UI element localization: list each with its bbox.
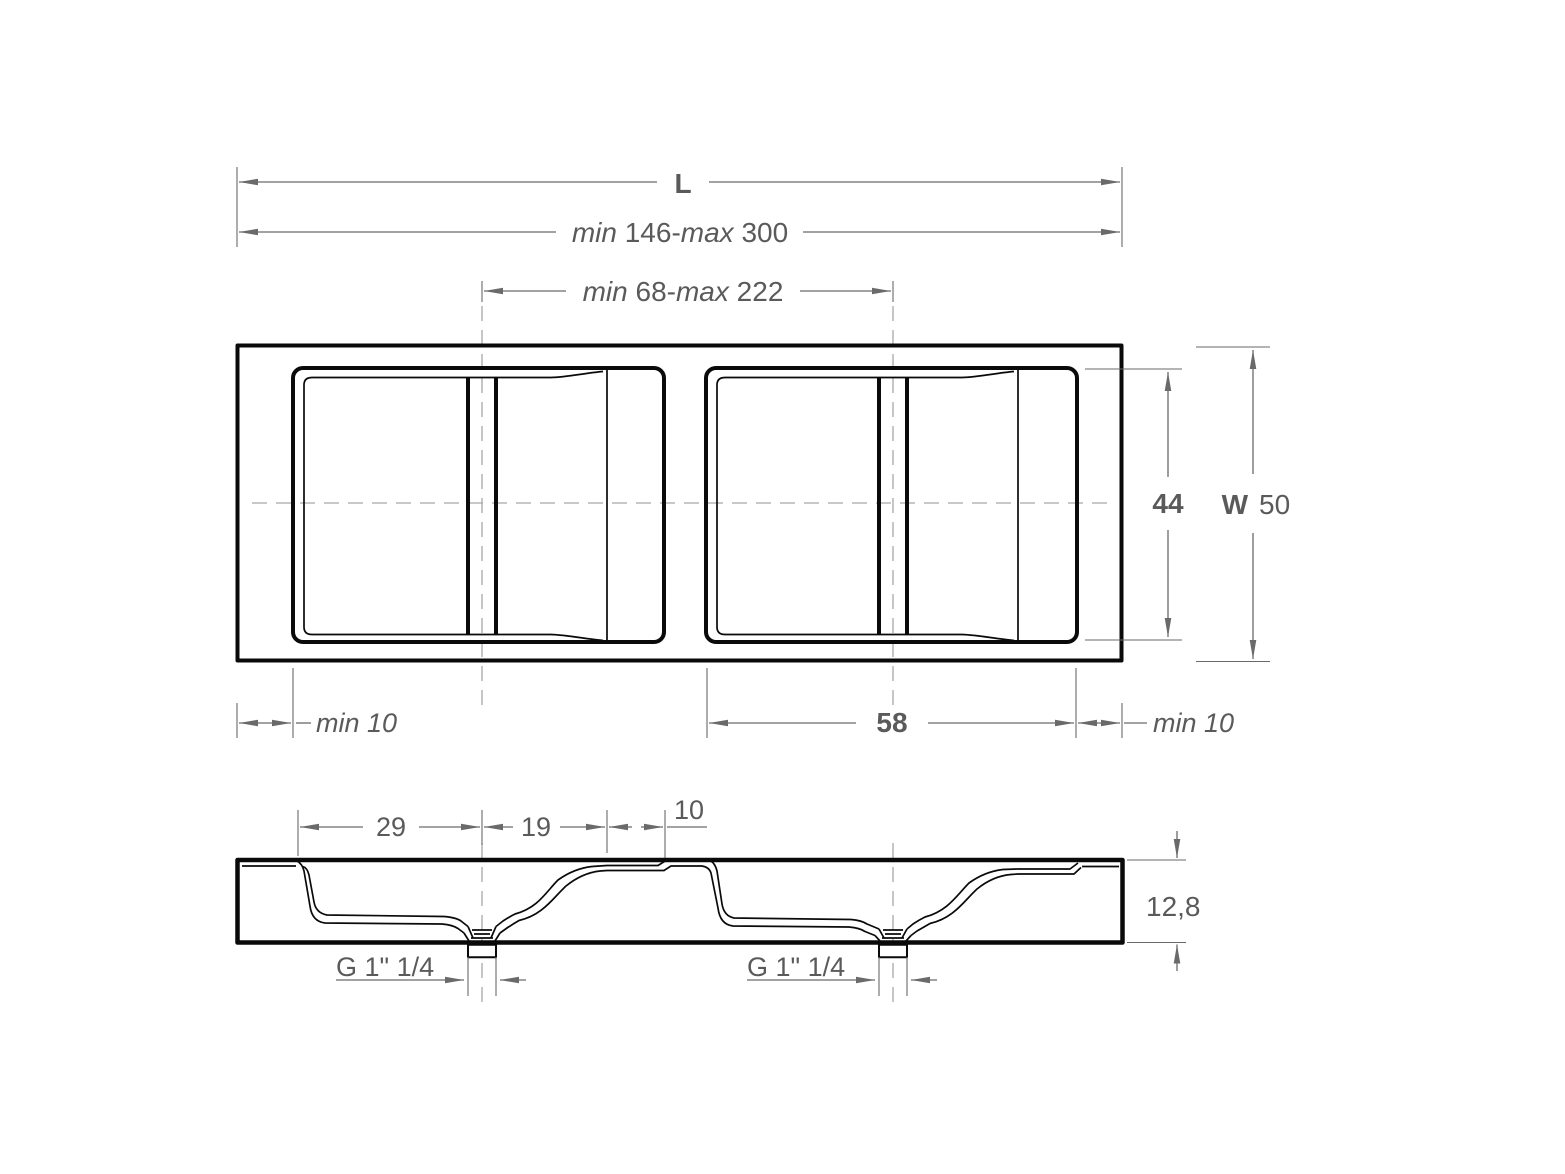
dim-right-margin: min 10 xyxy=(1078,703,1234,738)
basin-width-label: 44 xyxy=(1152,488,1184,519)
dim-basin-width-44: 44 xyxy=(1085,369,1184,640)
overall-length-label: L xyxy=(674,168,691,199)
drain-spacing-label: min 68-max 222 xyxy=(583,276,784,307)
right-margin-label: min 10 xyxy=(1153,708,1234,738)
dim-29-label: 29 xyxy=(376,812,406,842)
dim-10-label: 10 xyxy=(674,795,704,825)
right-drain-stub xyxy=(879,945,907,958)
callout-left-drain: G 1" 1/4 xyxy=(336,952,526,996)
overall-width-value: 50 xyxy=(1259,489,1290,520)
plan-view xyxy=(238,346,1122,661)
right-basin-profile-inner-a xyxy=(711,861,879,929)
right-basin-profile-outer-b xyxy=(911,868,1081,936)
length-range-label: min 146-max 300 xyxy=(572,217,788,248)
left-drain-threads xyxy=(471,930,493,938)
dim-length-range: min 146-max 300 xyxy=(239,217,1120,248)
right-basin-inner-edge xyxy=(717,372,1014,641)
countertop-outline xyxy=(238,346,1122,661)
section-view xyxy=(238,860,1123,957)
dim-basin-length-58: 58 xyxy=(707,668,1076,738)
left-basin-inner-edge xyxy=(304,372,603,641)
dim-thickness: 12,8 xyxy=(1127,831,1201,971)
right-drain-threads xyxy=(882,930,904,938)
right-drain-thread-label: G 1" 1/4 xyxy=(747,952,845,982)
dim-left-margin: min 10 xyxy=(237,668,397,738)
dim-19-label: 19 xyxy=(521,812,551,842)
technical-drawing: L min 146-max 300 min 68-max 222 xyxy=(0,0,1565,1174)
left-margin-label: min 10 xyxy=(316,708,397,738)
dim-drain-spacing-range: min 68-max 222 xyxy=(482,276,893,307)
overall-width-letter: W xyxy=(1222,489,1249,520)
left-basin-plan xyxy=(293,368,664,642)
left-drain-stub xyxy=(468,945,496,958)
centerlines xyxy=(252,306,1108,1005)
drawing-svg: L min 146-max 300 min 68-max 222 xyxy=(0,0,1565,1174)
dim-section-top: 29 19 10 xyxy=(298,795,707,860)
thickness-label: 12,8 xyxy=(1146,891,1201,922)
right-basin-profile-outer-a xyxy=(702,866,875,936)
left-basin-rim xyxy=(293,368,664,642)
left-basin-profile-outer-a xyxy=(297,861,464,933)
left-basin-profile-inner-a xyxy=(303,867,468,927)
right-basin-profile-inner-b xyxy=(907,863,1078,929)
basin-length-label: 58 xyxy=(876,707,907,738)
right-basin-plan xyxy=(706,368,1077,642)
dim-overall-width-50: W 50 xyxy=(1196,347,1290,662)
left-basin-profile-outer-b xyxy=(500,866,702,933)
callout-right-drain: G 1" 1/4 xyxy=(747,952,937,996)
right-basin-rim xyxy=(706,368,1077,642)
left-drain-thread-label: G 1" 1/4 xyxy=(336,952,434,982)
